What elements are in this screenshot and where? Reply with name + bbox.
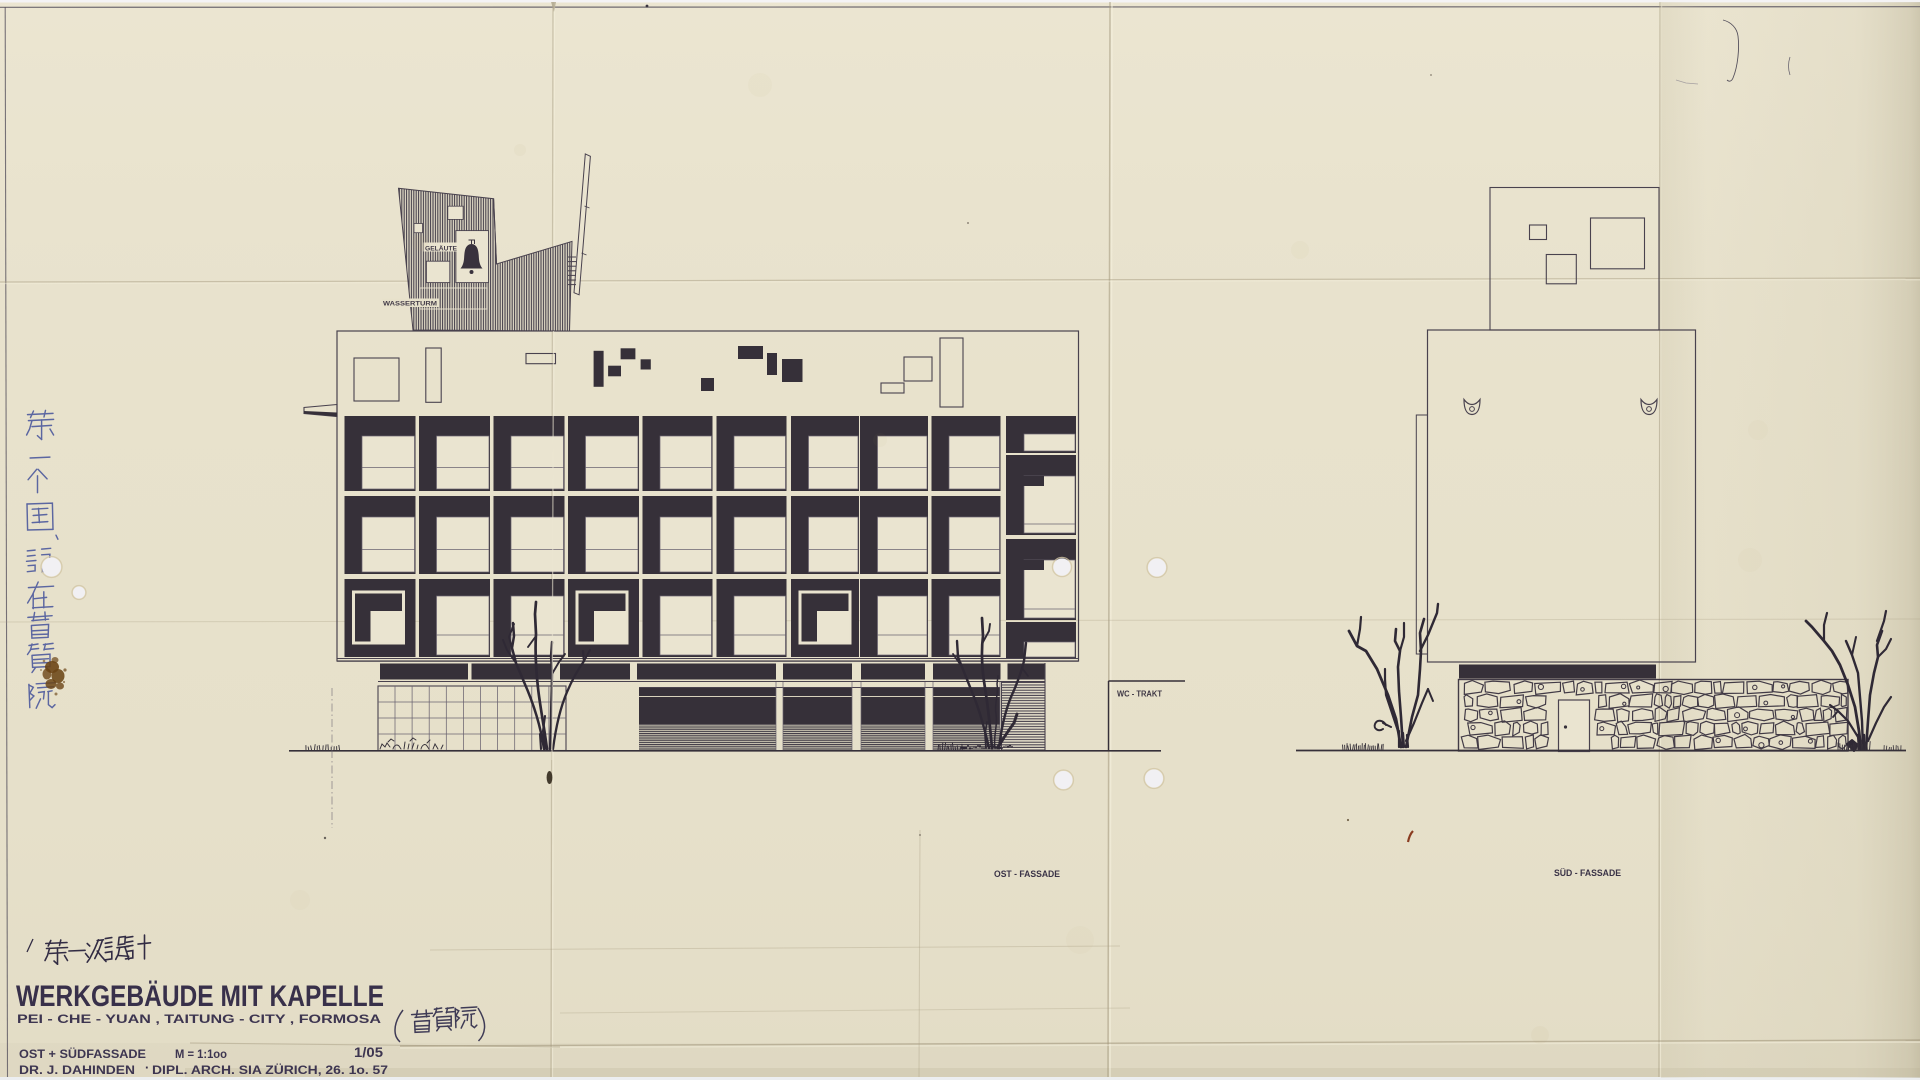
svg-text:·: ·: [145, 1060, 149, 1075]
svg-text:WC - TRAKT: WC - TRAKT: [1117, 690, 1162, 699]
svg-text:WERKGEBÄUDE MIT KAPELLE: WERKGEBÄUDE MIT KAPELLE: [16, 980, 384, 1013]
svg-text:DIPL. ARCH. SIA ZÜRICH, 26. 1o: DIPL. ARCH. SIA ZÜRICH, 26. 1o. 57: [152, 1062, 388, 1077]
svg-text:SÜD - FASSADE: SÜD - FASSADE: [1554, 868, 1621, 879]
svg-text:GELÄUTE: GELÄUTE: [425, 245, 457, 253]
svg-text:OST - FASSADE: OST - FASSADE: [994, 869, 1060, 880]
svg-text:PEI - CHE - YUAN , TAITUNG - C: PEI - CHE - YUAN , TAITUNG - CITY , FORM…: [17, 1014, 381, 1026]
svg-text:M = 1:1oo: M = 1:1oo: [175, 1047, 227, 1061]
svg-text:1/05: 1/05: [354, 1045, 384, 1060]
svg-text:DR. J. DAHINDEN: DR. J. DAHINDEN: [19, 1063, 135, 1077]
svg-text:WASSERTURM: WASSERTURM: [383, 301, 437, 308]
svg-text:OST + SÜDFASSADE: OST + SÜDFASSADE: [19, 1046, 146, 1061]
